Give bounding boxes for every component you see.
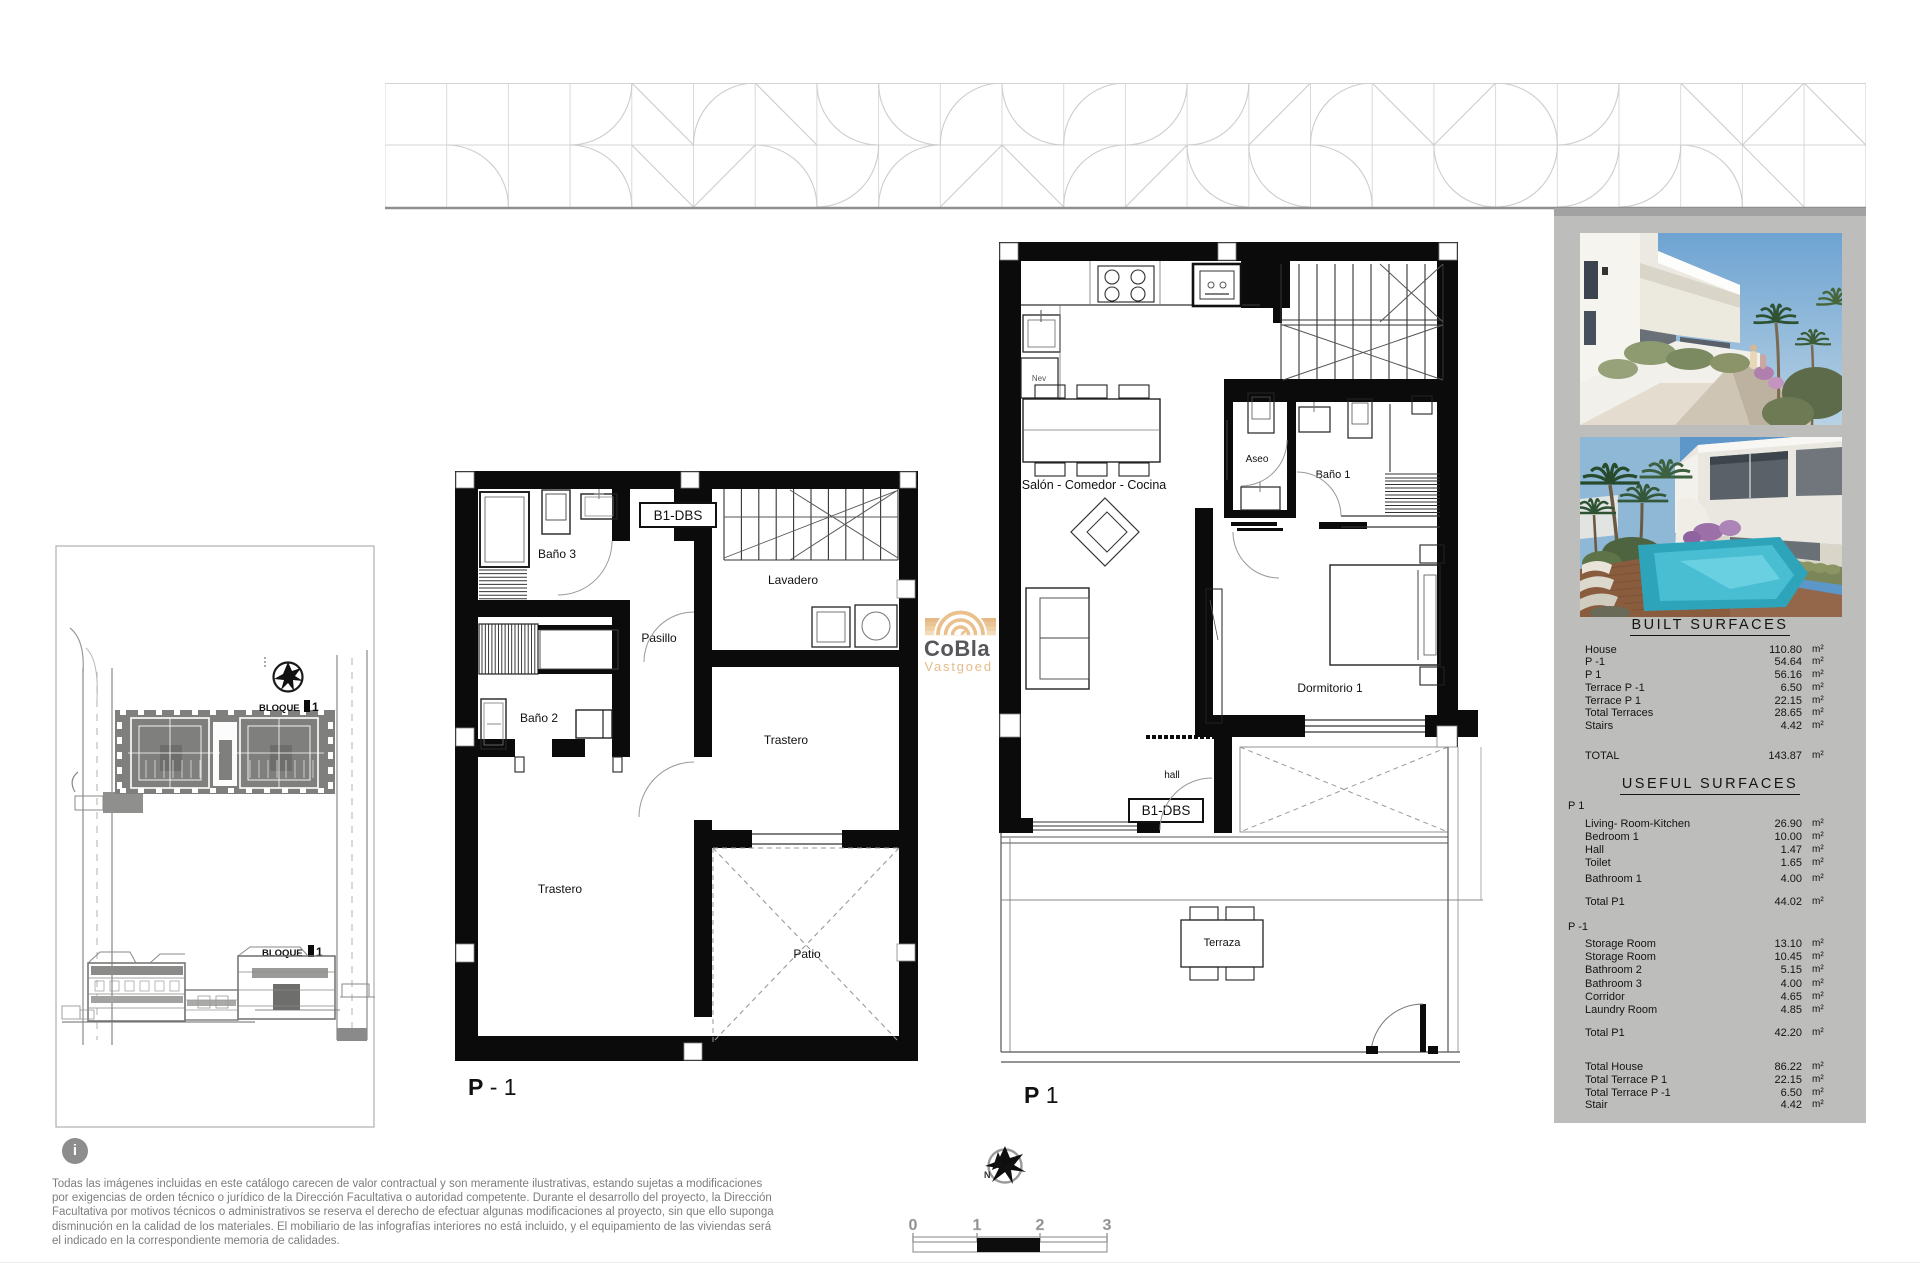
- svg-text:2: 2: [1036, 1217, 1045, 1234]
- svg-text:Vastgoed: Vastgoed: [925, 659, 993, 674]
- svg-text:BLOQUE: BLOQUE: [262, 948, 303, 959]
- svg-text:3: 3: [1103, 1217, 1112, 1234]
- svg-text:0: 0: [909, 1217, 918, 1234]
- svg-text:B1-DBS: B1-DBS: [654, 508, 703, 523]
- svg-text:1: 1: [973, 1217, 982, 1234]
- svg-text:CoBla: CoBla: [924, 636, 990, 661]
- svg-text:Trastero: Trastero: [538, 882, 583, 896]
- svg-text:Dormitorio 1: Dormitorio 1: [1297, 681, 1363, 695]
- svg-text:1: 1: [316, 945, 323, 959]
- svg-text:Trastero: Trastero: [764, 733, 809, 747]
- svg-text:Baño 2: Baño 2: [520, 711, 558, 725]
- svg-text:Patio: Patio: [793, 947, 821, 961]
- svg-text:Nev: Nev: [1032, 374, 1046, 383]
- svg-text:N: N: [984, 1170, 991, 1180]
- svg-text:Aseo: Aseo: [1246, 454, 1269, 465]
- svg-text:Pasillo: Pasillo: [641, 631, 677, 645]
- svg-text:Salón - Comedor - Cocina: Salón - Comedor - Cocina: [1022, 478, 1167, 492]
- svg-text:BLOQUE: BLOQUE: [259, 703, 300, 714]
- svg-text:hall: hall: [1164, 770, 1180, 781]
- svg-text:Lavadero: Lavadero: [768, 573, 818, 587]
- svg-text:Baño 3: Baño 3: [538, 547, 576, 561]
- svg-text:Terraza: Terraza: [1204, 937, 1242, 949]
- svg-text:1: 1: [312, 700, 319, 714]
